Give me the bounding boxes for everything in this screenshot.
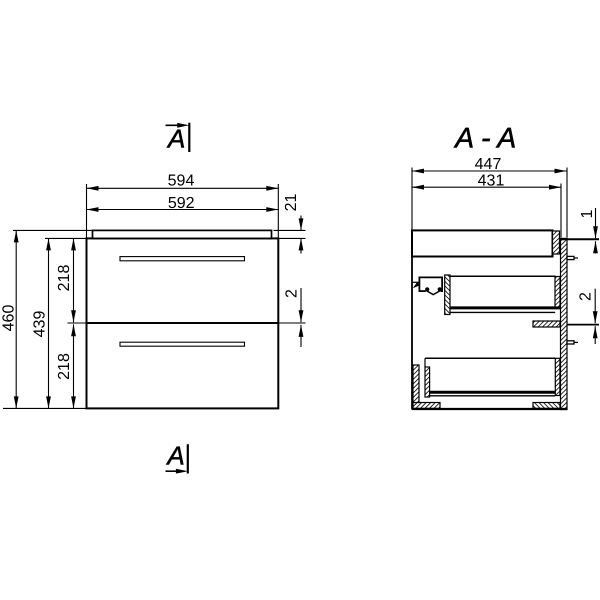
svg-text:21: 21: [283, 194, 300, 212]
svg-text:A: A: [166, 123, 185, 153]
svg-text:218: 218: [56, 265, 73, 292]
svg-text:2: 2: [578, 292, 595, 301]
svg-text:A: A: [165, 440, 184, 470]
svg-text:460: 460: [1, 305, 18, 332]
svg-text:594: 594: [168, 173, 195, 190]
svg-text:1: 1: [579, 209, 596, 218]
svg-text:2: 2: [283, 289, 300, 298]
svg-text:592: 592: [168, 195, 195, 212]
svg-text:439: 439: [32, 311, 49, 338]
svg-text:431: 431: [478, 172, 505, 189]
svg-text:447: 447: [475, 156, 502, 173]
svg-text:A - A: A - A: [453, 123, 516, 155]
svg-text:218: 218: [56, 353, 73, 380]
